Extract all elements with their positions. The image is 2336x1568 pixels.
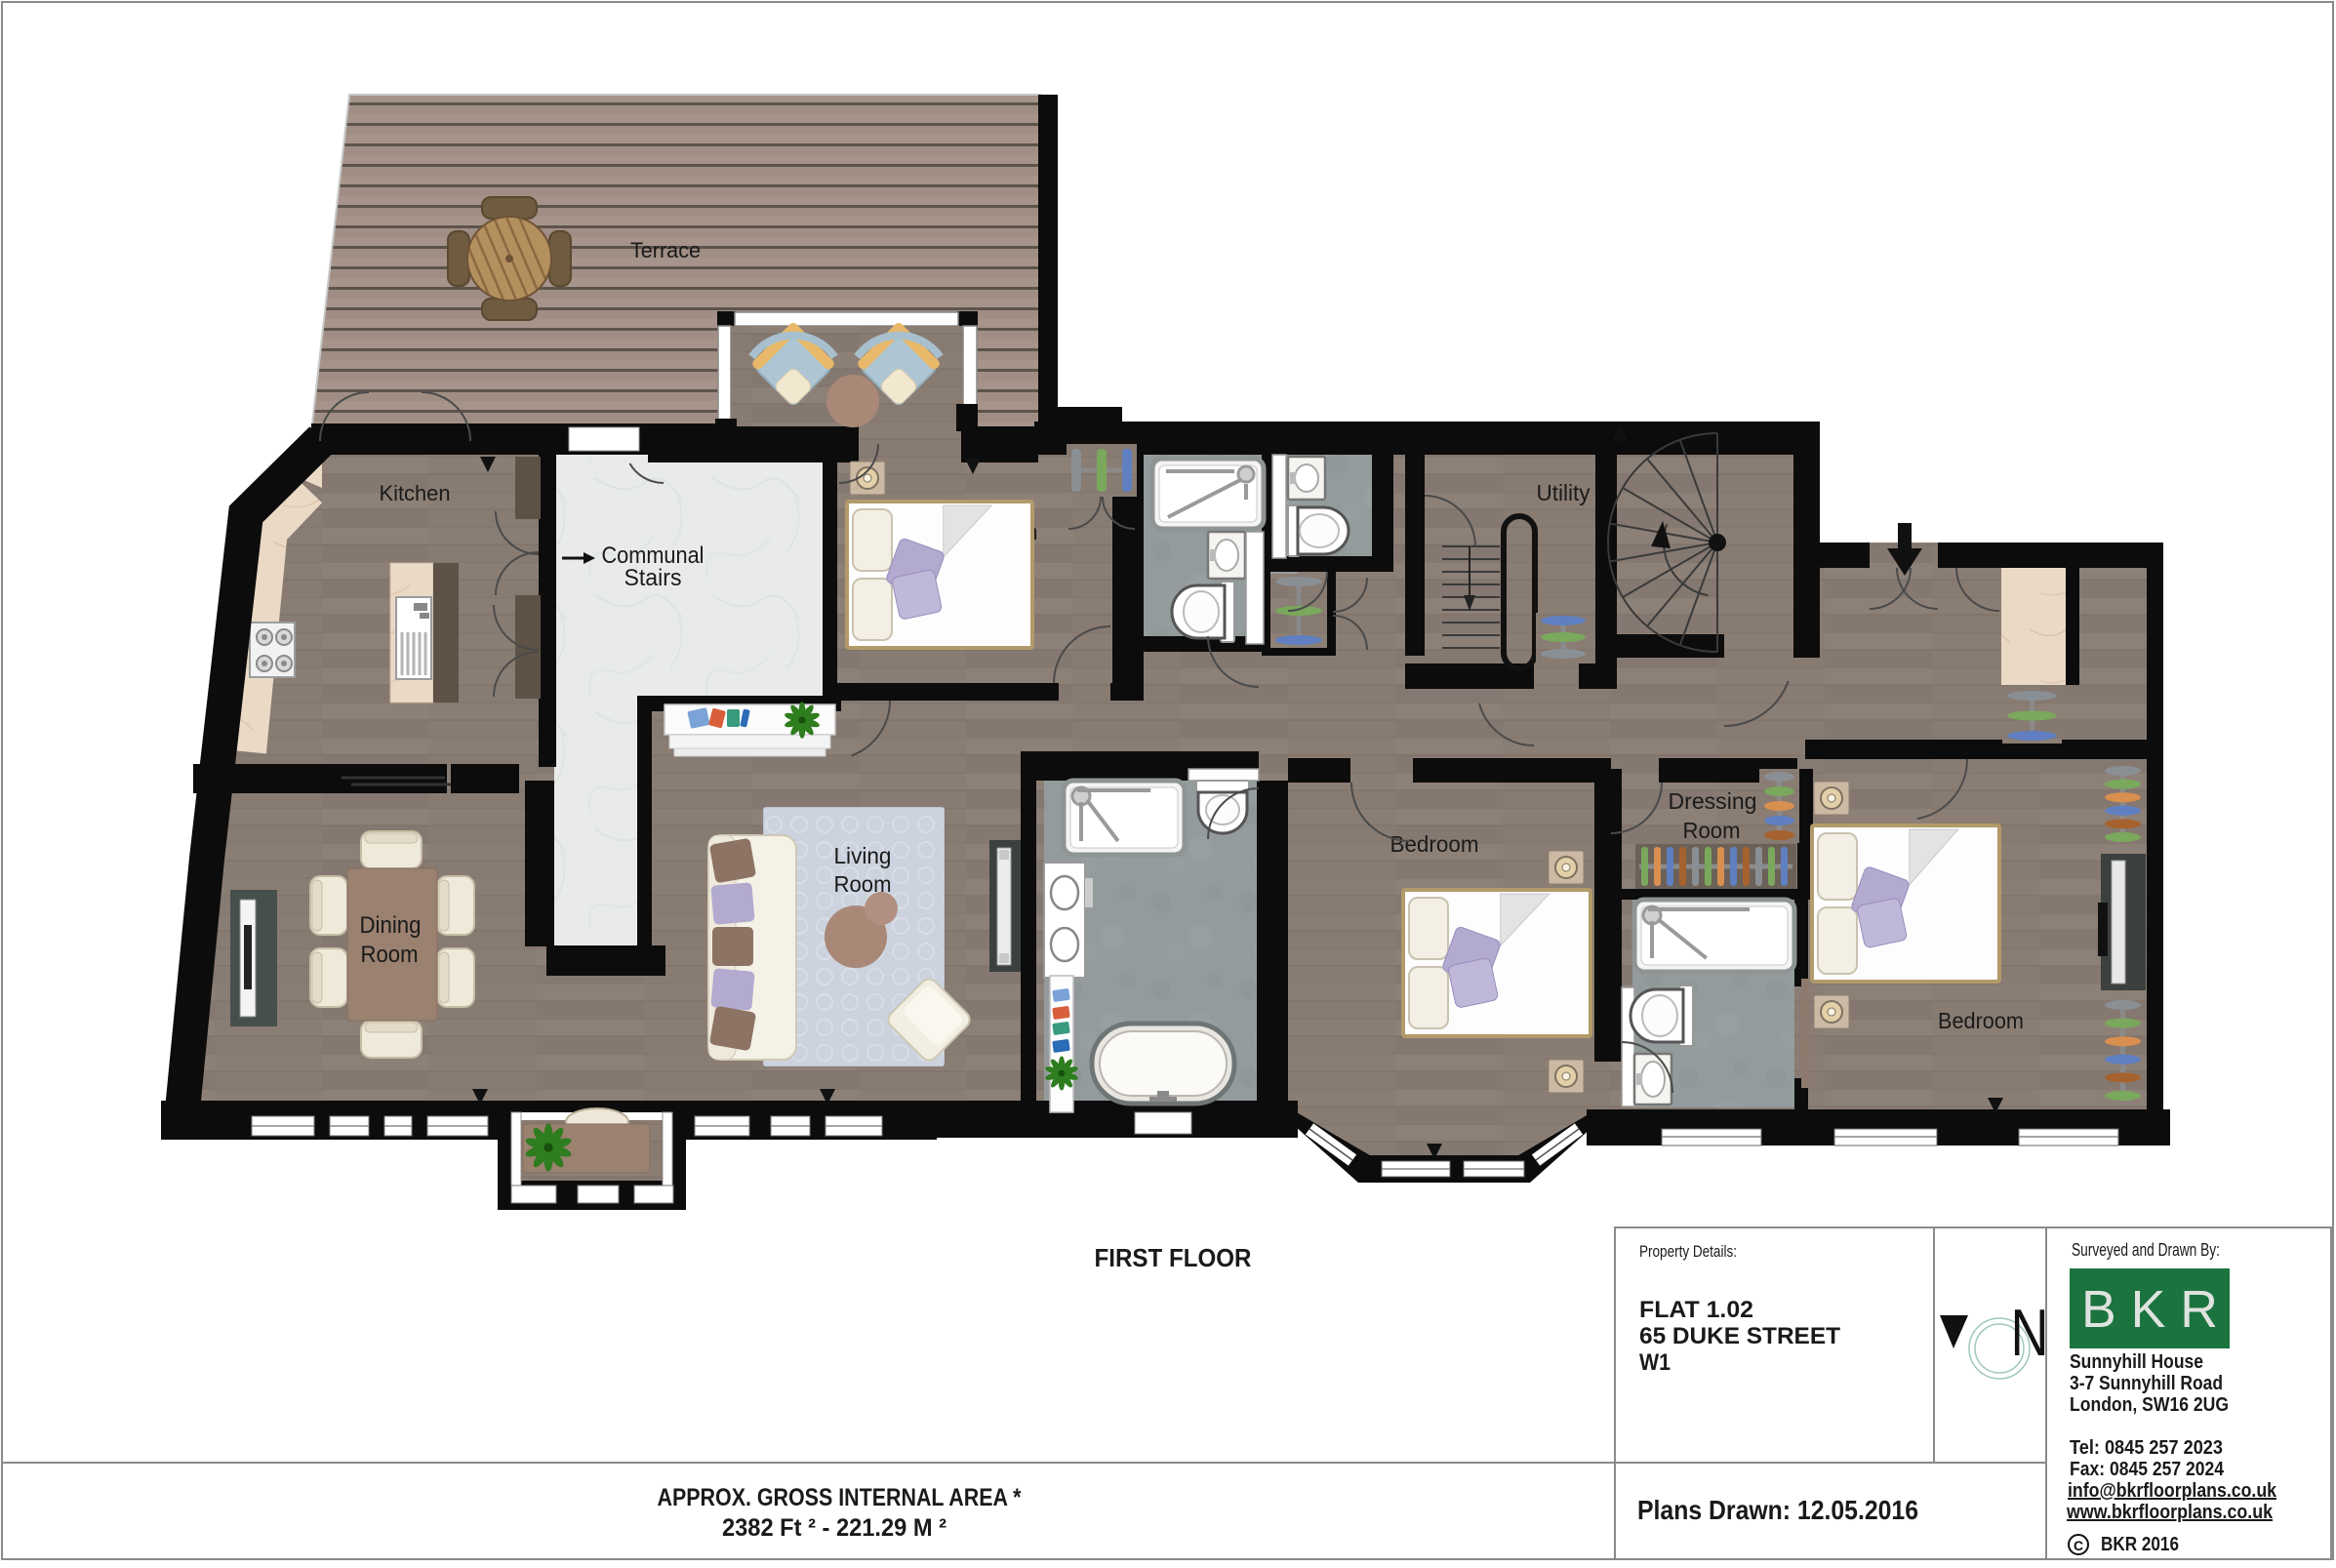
svg-text:Terrace: Terrace <box>630 238 701 262</box>
svg-text:Room: Room <box>361 942 419 968</box>
svg-text:www.bkrfloorplans.co.uk: www.bkrfloorplans.co.uk <box>2066 1502 2274 1523</box>
svg-text:N: N <box>2011 1296 2049 1370</box>
svg-text:B K R: B K R <box>2081 1280 2218 1339</box>
svg-text:3-7 Sunnyhill Road: 3-7 Sunnyhill Road <box>2070 1373 2223 1394</box>
svg-text:Dining: Dining <box>360 912 422 939</box>
svg-text:APPROX. GROSS INTERNAL AREA *: APPROX. GROSS INTERNAL AREA * <box>658 1484 1022 1511</box>
svg-text:Bedroom: Bedroom <box>1938 1008 2024 1033</box>
svg-text:info@bkrfloorplans.co.uk: info@bkrfloorplans.co.uk <box>2068 1480 2277 1502</box>
svg-text:BKR 2016: BKR 2016 <box>2101 1534 2179 1555</box>
svg-text:C: C <box>2074 1538 2083 1553</box>
svg-text:Dressing: Dressing <box>1669 788 1757 814</box>
svg-text:FLAT 1.02: FLAT 1.02 <box>1639 1297 1753 1323</box>
svg-text:Plans Drawn: 12.05.2016: Plans Drawn: 12.05.2016 <box>1637 1495 1918 1525</box>
svg-text:Sunnyhill House: Sunnyhill House <box>2070 1351 2203 1373</box>
svg-text:65 DUKE STREET: 65 DUKE STREET <box>1639 1323 1840 1349</box>
svg-text:Room: Room <box>1683 818 1741 843</box>
svg-text:Surveyed and Drawn By:: Surveyed and Drawn By: <box>2072 1240 2220 1260</box>
svg-text:London, SW16 2UG: London, SW16 2UG <box>2070 1394 2229 1416</box>
svg-text:FIRST FLOOR: FIRST FLOOR <box>1095 1243 1252 1272</box>
svg-text:Stairs: Stairs <box>624 565 682 591</box>
svg-text:W1: W1 <box>1639 1349 1671 1376</box>
svg-text:Kitchen: Kitchen <box>380 481 451 505</box>
svg-text:Utility: Utility <box>1537 480 1591 505</box>
svg-text:Living: Living <box>834 843 892 868</box>
svg-text:Property Details:: Property Details: <box>1639 1242 1737 1261</box>
svg-text:Fax: 0845 257 2024: Fax: 0845 257 2024 <box>2070 1459 2225 1480</box>
svg-text:Bedroom: Bedroom <box>1390 831 1479 857</box>
svg-text:Tel: 0845 257 2023: Tel: 0845 257 2023 <box>2070 1437 2223 1459</box>
svg-text:2382 Ft ² - 221.29 M ²: 2382 Ft ² - 221.29 M ² <box>722 1514 946 1542</box>
